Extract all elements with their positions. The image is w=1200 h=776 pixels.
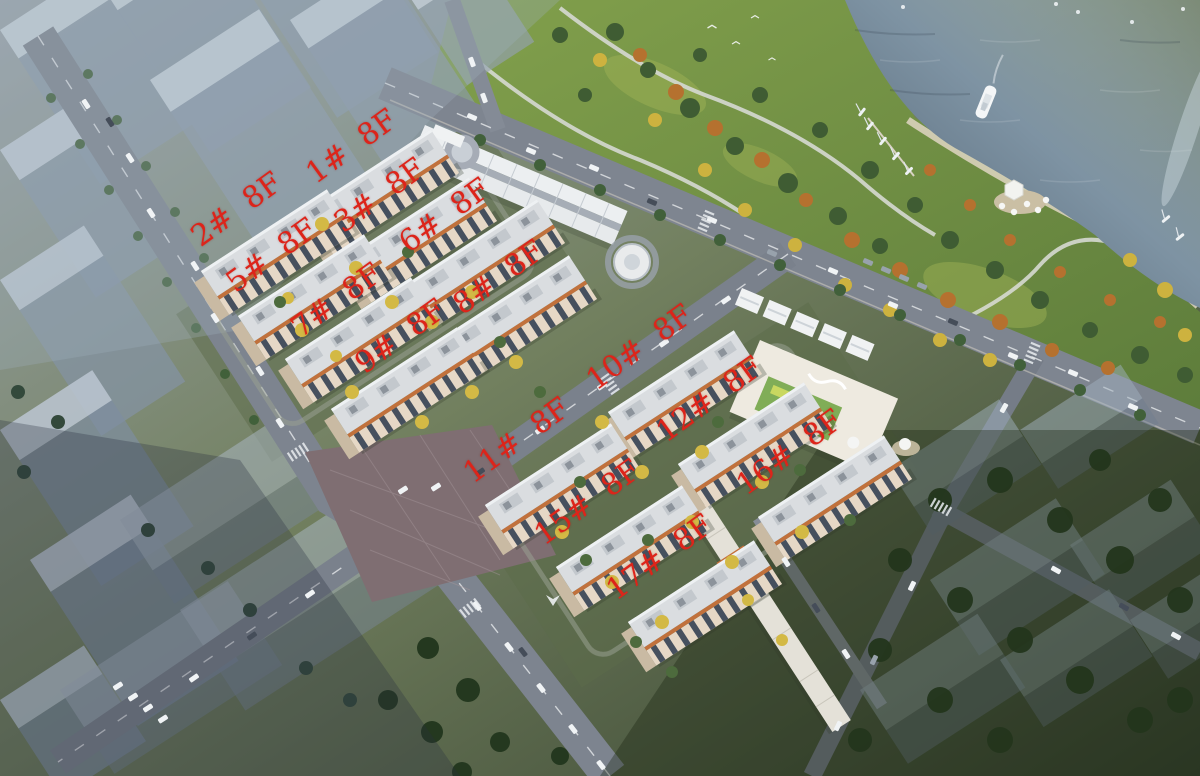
scene-svg (0, 0, 1200, 776)
aerial-render: 1# 8F2# 8F3# 8F5# 8F6# 8F7# 8F8# 8F9# 8F… (0, 0, 1200, 776)
